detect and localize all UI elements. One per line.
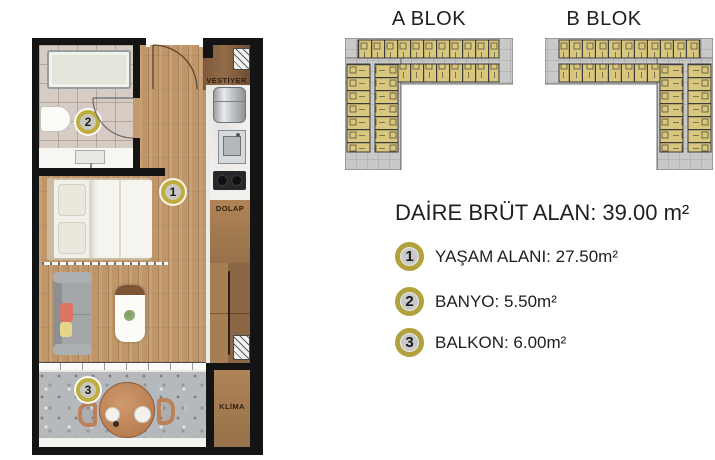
legend-circle-1: 1 (395, 242, 424, 271)
legend-item-bath: 2 BANYO: 5.50m² (395, 287, 557, 316)
apartment-brochure: 2 VESTİYER DOLAP KLİMA (0, 0, 715, 460)
legend-number-2: 2 (405, 293, 413, 310)
legend-circle-3: 3 (395, 328, 424, 357)
legend-item-living: 1 YAŞAM ALANI: 27.50m² (395, 242, 618, 271)
legend-circle-2: 2 (395, 287, 424, 316)
bath-door-opening (133, 98, 140, 138)
b-blok-plan (545, 38, 713, 170)
legend-number-1: 1 (405, 248, 413, 265)
entry-door-arc (153, 45, 197, 89)
bath-door-arc (93, 98, 133, 138)
unit-floor-plan: 2 VESTİYER DOLAP KLİMA (32, 38, 263, 455)
legend-label-living: YAŞAM ALANI: 27.50m² (435, 247, 618, 267)
a-blok-plan (345, 38, 513, 170)
legend-label-balcony: BALKON: 6.00m² (435, 333, 566, 353)
gross-area-title: DAİRE BRÜT ALAN: 39.00 m² (395, 200, 689, 226)
legend-item-balcony: 3 BALKON: 6.00m² (395, 328, 566, 357)
legend-label-bath: BANYO: 5.50m² (435, 292, 557, 312)
legend-number-3: 3 (405, 334, 413, 351)
a-blok-title: A BLOK (345, 8, 513, 32)
b-blok-title: B BLOK (524, 8, 684, 32)
door-swings (32, 38, 263, 455)
